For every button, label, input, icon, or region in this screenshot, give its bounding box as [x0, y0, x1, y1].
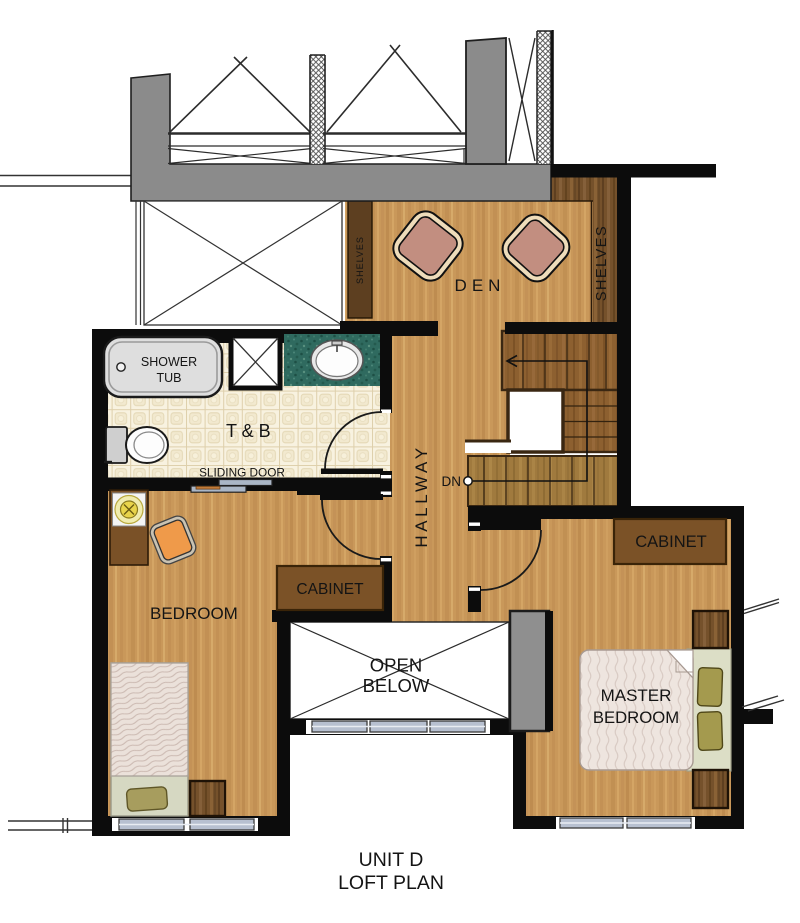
svg-text:T & B: T & B — [226, 421, 271, 441]
svg-text:MASTER: MASTER — [601, 686, 672, 705]
svg-text:DN: DN — [442, 474, 462, 489]
svg-text:SLIDING DOOR: SLIDING DOOR — [199, 466, 285, 480]
svg-text:LOFT PLAN: LOFT PLAN — [338, 872, 444, 894]
svg-text:UNIT D: UNIT D — [359, 849, 424, 871]
svg-text:SHOWER: SHOWER — [141, 355, 197, 369]
svg-text:BEDROOM: BEDROOM — [150, 604, 238, 623]
svg-text:HALLWAY: HALLWAY — [412, 444, 431, 547]
svg-text:OPEN: OPEN — [370, 655, 422, 676]
svg-text:SHELVES: SHELVES — [594, 225, 610, 301]
svg-text:DEN: DEN — [455, 276, 506, 295]
svg-text:TUB: TUB — [157, 371, 182, 385]
svg-text:SHELVES: SHELVES — [355, 236, 365, 284]
svg-text:BEDROOM: BEDROOM — [593, 708, 679, 727]
svg-text:CABINET: CABINET — [635, 533, 707, 551]
svg-text:CABINET: CABINET — [296, 581, 364, 598]
svg-text:BELOW: BELOW — [363, 675, 430, 696]
